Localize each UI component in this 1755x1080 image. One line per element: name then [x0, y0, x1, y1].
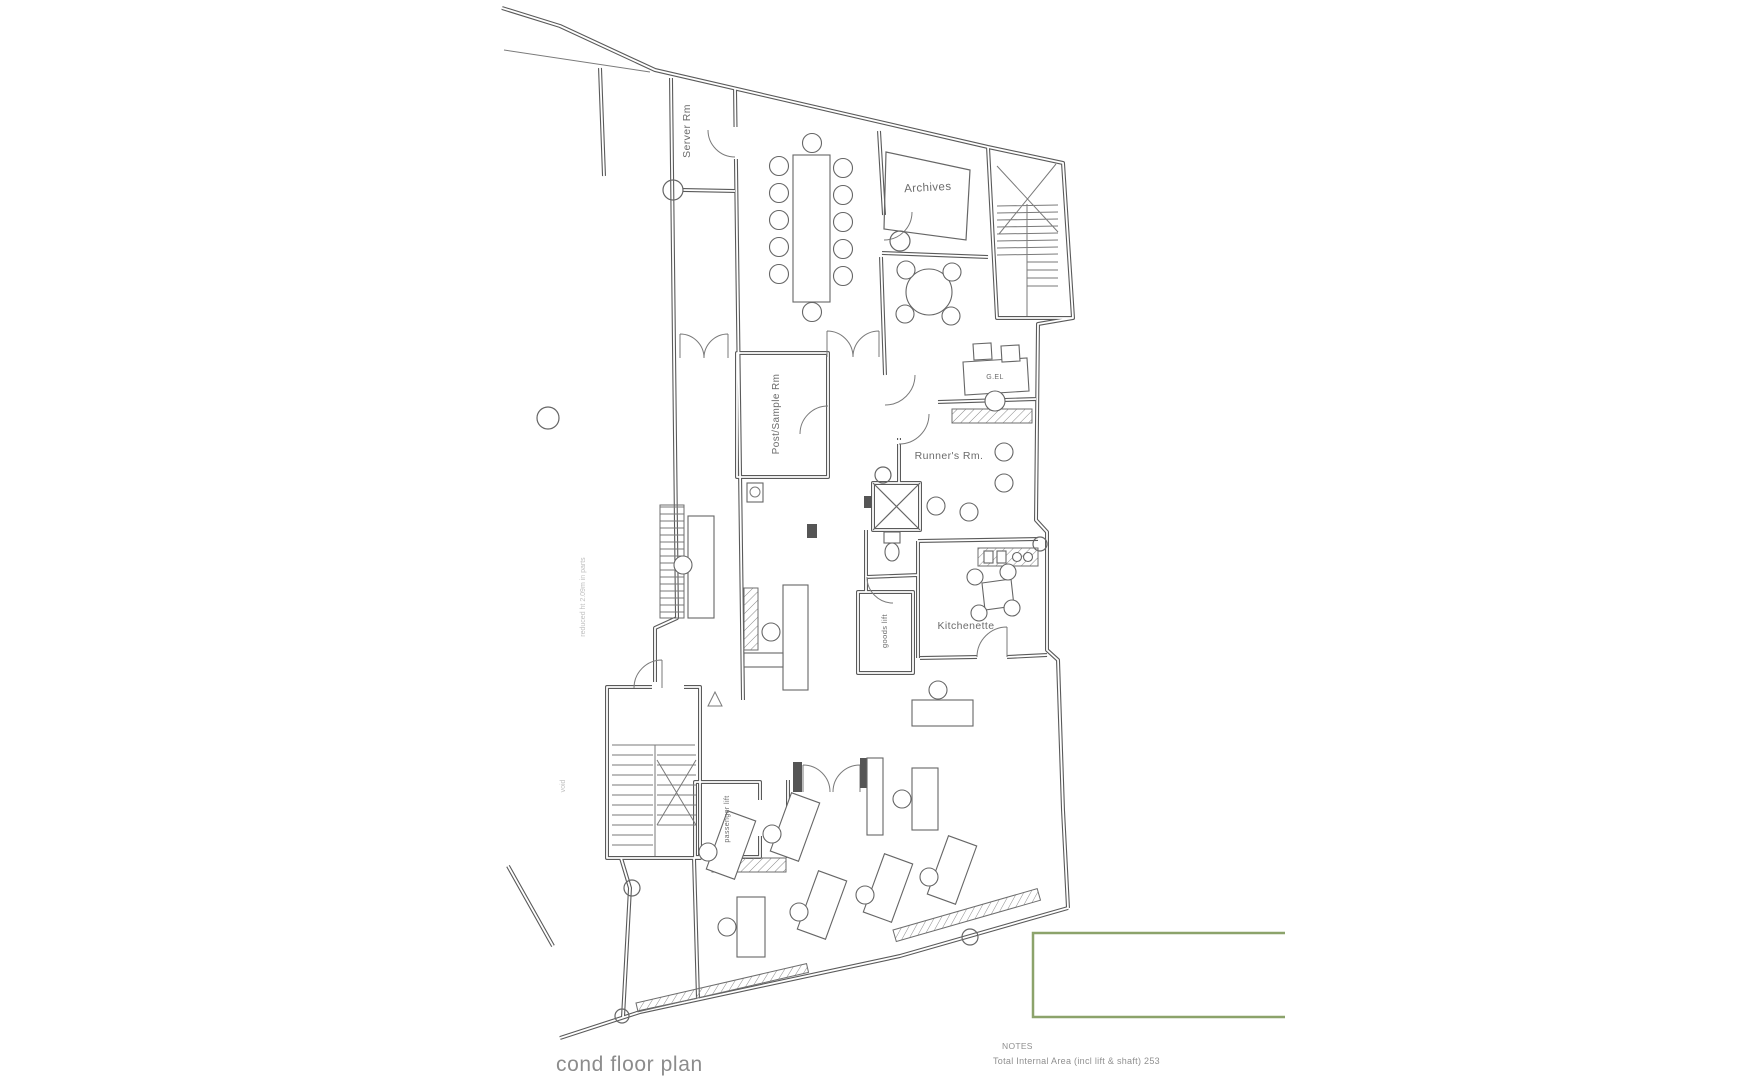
annotation-reduced-height: reduced ht 2.09m in parts — [580, 557, 587, 637]
label-runners-room: Runner's Rm. — [915, 450, 984, 462]
label-goods-lift: goods lift — [880, 613, 889, 648]
label-server-room: Server Rm — [681, 104, 693, 158]
up-arrow-icon — [708, 692, 722, 706]
notes-block: NOTES Total Internal Area (incl lift & s… — [993, 1041, 1160, 1066]
door-post — [793, 762, 802, 792]
double-door-arc — [833, 765, 860, 792]
sink-icon — [1024, 553, 1033, 562]
notes-total-area: Total Internal Area (incl lift & shaft) … — [993, 1056, 1160, 1066]
door-arc — [853, 331, 879, 357]
kitchen-group — [967, 548, 1038, 621]
stairs-lower — [612, 692, 722, 856]
label-desk-tag: G.EL — [986, 374, 1004, 381]
double-door-arc — [803, 765, 830, 792]
label-kitchenette: Kitchenette — [938, 620, 995, 632]
door-arc — [704, 334, 728, 358]
round-table-group — [896, 261, 961, 325]
floor-plan-page: Server Rm Archives G.EL Runner's Rm. Pos… — [0, 0, 1755, 1080]
door-arc — [827, 331, 853, 357]
lift-x-icon — [873, 483, 920, 530]
floor-plan-drawing: Server Rm Archives G.EL Runner's Rm. Pos… — [0, 0, 1755, 1080]
wall-openings — [652, 127, 905, 836]
sink-icon — [1013, 553, 1022, 562]
door-arc — [885, 375, 915, 405]
door-arc — [680, 334, 704, 358]
door-hardware — [807, 524, 817, 538]
notes-heading: NOTES — [1002, 1041, 1033, 1051]
label-post-sample-room: Post/Sample Rm — [771, 374, 782, 455]
label-passenger-lift: passenger lift — [724, 795, 731, 842]
stairs-upper — [997, 164, 1058, 316]
door-arc — [899, 414, 929, 444]
door-arc — [800, 406, 828, 434]
conference-table-group — [770, 134, 853, 322]
plan-title: cond floor plan — [556, 1053, 703, 1076]
office-desks — [699, 681, 977, 957]
label-archives: Archives — [904, 181, 952, 195]
archives-shelving — [884, 152, 970, 240]
annotation-side-note: void — [560, 779, 567, 792]
boundary-wedge-line — [504, 50, 650, 72]
highlight-box — [1033, 933, 1285, 1017]
wc-fixtures — [747, 483, 900, 561]
